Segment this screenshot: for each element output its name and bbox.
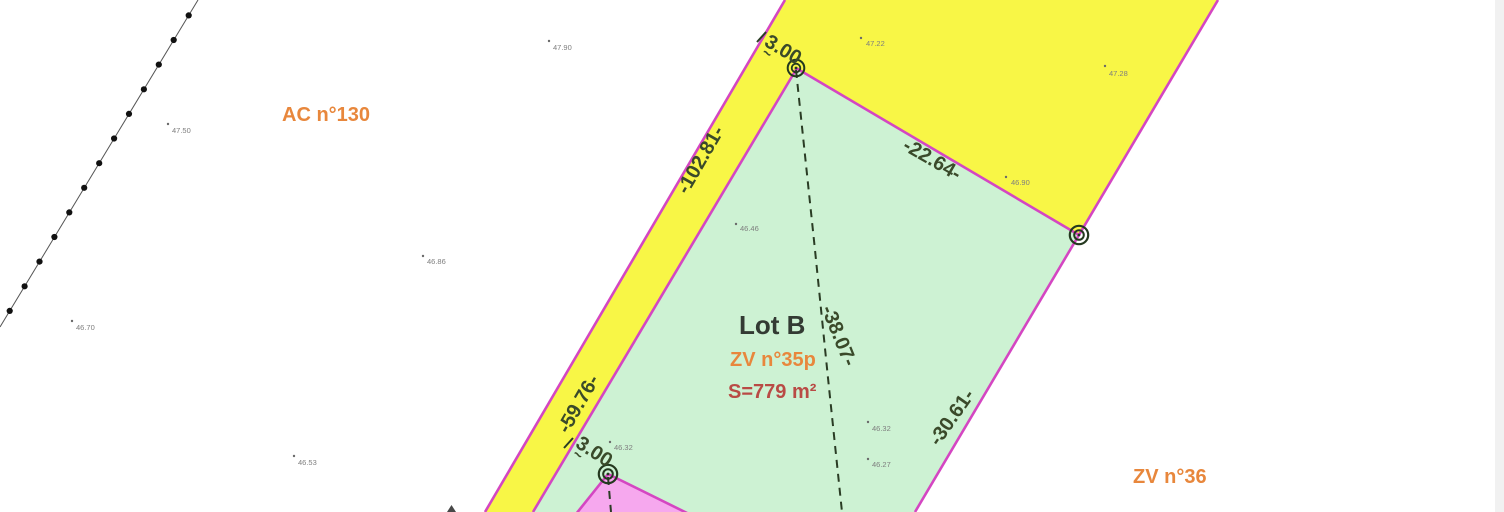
svg-text:47.50: 47.50	[172, 126, 191, 135]
svg-text:ZV n°36: ZV n°36	[1133, 466, 1207, 488]
svg-text:46.90: 46.90	[1011, 178, 1030, 187]
svg-text:47.22: 47.22	[866, 39, 885, 48]
svg-text:46.70: 46.70	[76, 323, 95, 332]
svg-text:47.90: 47.90	[553, 43, 572, 52]
svg-text:46.53: 46.53	[298, 458, 317, 467]
svg-text:AC n°130: AC n°130	[282, 104, 370, 126]
svg-text:S=779 m²: S=779 m²	[728, 381, 817, 403]
svg-text:46.32: 46.32	[614, 443, 633, 452]
svg-text:Lot B: Lot B	[739, 310, 805, 340]
svg-text:47.28: 47.28	[1109, 69, 1128, 78]
svg-text:46.86: 46.86	[427, 257, 446, 266]
svg-text:46.46: 46.46	[740, 224, 759, 233]
svg-text:ZV n°35p: ZV n°35p	[730, 349, 816, 371]
svg-text:46.32: 46.32	[872, 424, 891, 433]
svg-text:46.27: 46.27	[872, 460, 891, 469]
